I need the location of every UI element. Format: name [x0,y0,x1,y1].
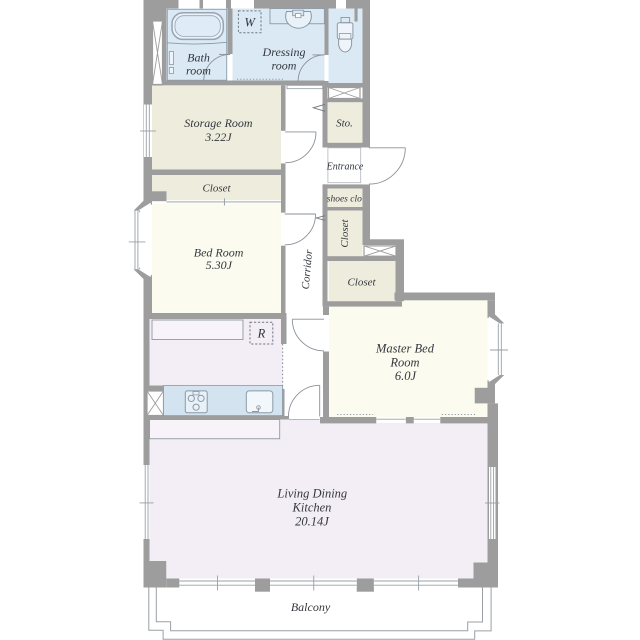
svg-text:Living Dining: Living Dining [276,487,347,501]
svg-text:R: R [257,326,266,340]
svg-text:Bath: Bath [187,51,210,65]
svg-text:Dressing: Dressing [262,45,306,59]
svg-text:Closet: Closet [339,219,351,248]
svg-text:room: room [272,58,297,72]
svg-text:5.30J: 5.30J [206,258,233,272]
svg-text:Entrance: Entrance [326,162,364,173]
svg-text:Master Bed: Master Bed [375,342,435,356]
svg-text:3.22J: 3.22J [204,130,232,144]
svg-text:Balcony: Balcony [291,600,331,614]
svg-text:20.14J: 20.14J [295,515,330,529]
svg-text:6.0J: 6.0J [395,369,418,383]
svg-text:shoes clo: shoes clo [327,194,362,204]
svg-text:Sto.: Sto. [336,118,353,130]
svg-text:Storage Room: Storage Room [184,116,253,130]
svg-text:Closet: Closet [202,183,231,195]
svg-text:Room: Room [389,355,419,369]
svg-text:W: W [244,16,256,30]
svg-text:Kitchen: Kitchen [292,501,332,515]
svg-text:room: room [186,64,211,78]
svg-text:Closet: Closet [347,277,376,289]
